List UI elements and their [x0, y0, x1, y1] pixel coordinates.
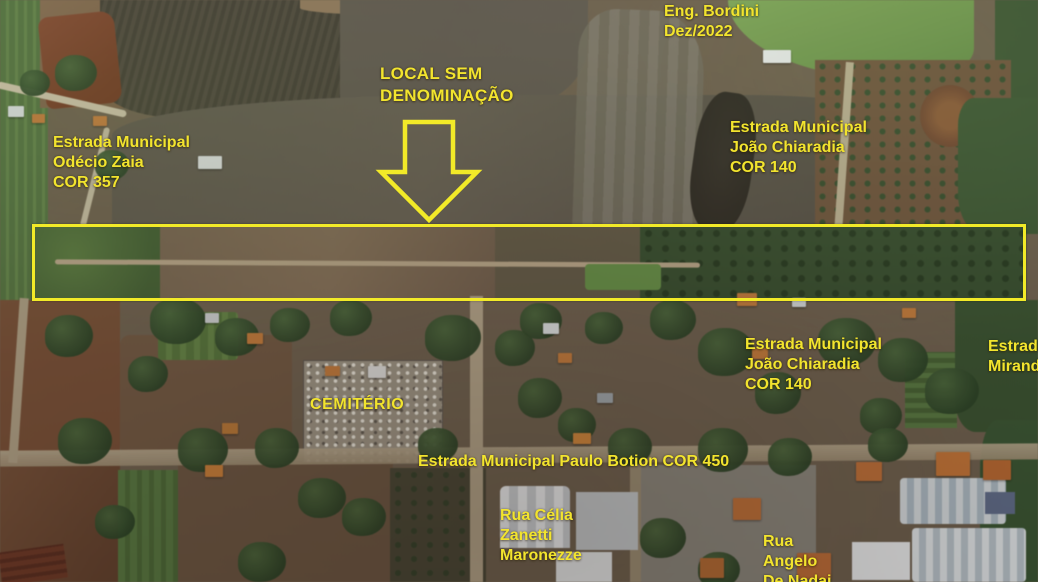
text-line: Estrada Municipal Paulo Botion COR 450: [418, 452, 729, 472]
text-line: DENOMINAÇÃO: [380, 85, 514, 107]
label-estrada-miranda-clipped: Estrada Mirand: [988, 337, 1038, 377]
text-line: CEMITÉRIO: [310, 395, 404, 415]
label-rua-celia-zanetti: Rua Célia Zanetti Maronezze: [500, 506, 582, 566]
label-estrada-paulo-botion: Estrada Municipal Paulo Botion COR 450: [418, 452, 729, 472]
text-line: Estrada Municipal: [745, 335, 882, 355]
annotated-satellite-map: Eng. Bordini Dez/2022 LOCAL SEM DENOMINA…: [0, 0, 1038, 582]
text-line: Estrada Municipal: [53, 133, 190, 153]
label-estrada-odecio-zaia: Estrada Municipal Odécio Zaia COR 357: [53, 133, 190, 193]
label-credit: Eng. Bordini Dez/2022: [664, 2, 759, 42]
text-line: Rua: [763, 532, 831, 552]
text-line: Rua Célia: [500, 506, 582, 526]
text-line: Zanetti: [500, 526, 582, 546]
label-cemiterio: CEMITÉRIO: [310, 395, 404, 415]
label-local-sem-denominacao: LOCAL SEM DENOMINAÇÃO: [380, 63, 514, 107]
text-line: LOCAL SEM: [380, 63, 514, 85]
down-arrow-icon: [375, 116, 485, 226]
text-line: Eng. Bordini: [664, 2, 759, 22]
text-line: Dez/2022: [664, 22, 759, 42]
text-line: Maronezze: [500, 546, 582, 566]
text-line: João Chiaradia: [745, 355, 882, 375]
label-estrada-joao-chiaradia-sul: Estrada Municipal João Chiaradia COR 140: [745, 335, 882, 395]
label-estrada-joao-chiaradia-norte: Estrada Municipal João Chiaradia COR 140: [730, 118, 867, 178]
text-line: De Nadai: [763, 572, 831, 582]
text-line: Estrada: [988, 337, 1038, 357]
text-line: COR 140: [730, 158, 867, 178]
annotation-layer: Eng. Bordini Dez/2022 LOCAL SEM DENOMINA…: [0, 0, 1038, 582]
highlight-rectangle: [32, 224, 1026, 301]
text-line: COR 357: [53, 173, 190, 193]
text-line: Mirand: [988, 357, 1038, 377]
label-rua-angelo-de-nadai: Rua Angelo De Nadai: [763, 532, 831, 582]
text-line: Angelo: [763, 552, 831, 572]
text-line: Estrada Municipal: [730, 118, 867, 138]
text-line: Odécio Zaia: [53, 153, 190, 173]
text-line: João Chiaradia: [730, 138, 867, 158]
text-line: COR 140: [745, 375, 882, 395]
